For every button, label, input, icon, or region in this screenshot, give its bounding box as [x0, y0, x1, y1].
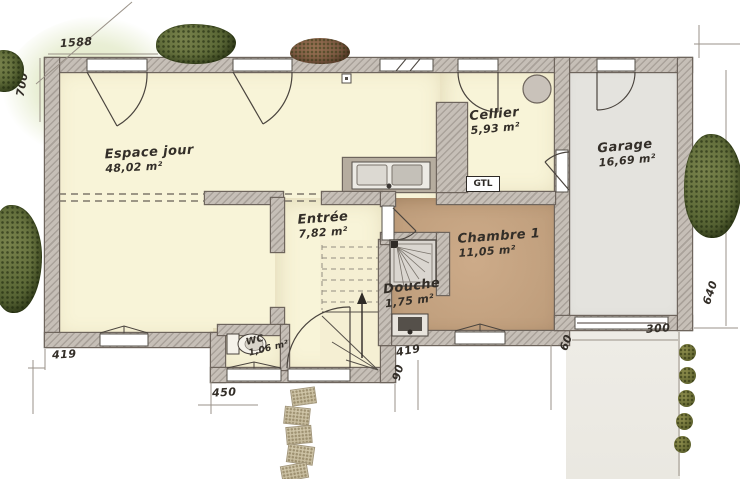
stepping-stone: [285, 425, 312, 445]
bush-top-red: [290, 38, 350, 64]
tree-right: [684, 134, 740, 238]
floor-plan: GTL Espace jour 48,02 m² Cellier 5,93 m²…: [0, 0, 740, 479]
open-boundary-dashed-lines: [59, 194, 320, 201]
dimension-driveway: 300: [646, 321, 671, 336]
tree-top: [156, 24, 236, 64]
dimension-value: 419: [52, 347, 77, 361]
column-symbol-inner: [345, 77, 348, 80]
dimension-value: 450: [212, 385, 237, 399]
plan-linework: [0, 0, 740, 479]
room-label-entree: Entrée 7,82 m²: [297, 210, 350, 240]
stepping-stone: [290, 386, 317, 406]
room-label-cellier: Cellier 5,93 m²: [469, 106, 521, 137]
shrub-dot: [676, 413, 693, 430]
shrub-dot: [674, 436, 691, 453]
room-label-espace-jour: Espace jour 48,02 m²: [104, 144, 194, 175]
stairs-up-arrow-icon: [357, 292, 367, 304]
dimension-bottom-left: 419: [52, 347, 77, 361]
room-label-garage: Garage 16,69 m²: [597, 138, 656, 170]
shrub-dot: [679, 367, 696, 384]
gtl-box: GTL: [466, 176, 500, 192]
dimension-wc-block: 450: [212, 385, 237, 399]
door-swings: [87, 72, 635, 368]
dimension-top: 1588: [60, 35, 93, 50]
gtl-label: GTL: [473, 179, 492, 189]
water-heater-fixture: [523, 75, 551, 103]
shrub-dot: [679, 344, 696, 361]
shrub-dot: [678, 390, 695, 407]
sink-fixture: [352, 162, 430, 189]
dimension-value: 300: [646, 321, 671, 336]
wall-openings: [87, 59, 668, 381]
dimension-value: 1588: [60, 35, 93, 50]
stepping-stone: [283, 406, 311, 427]
washbasin-fixture: [392, 314, 428, 336]
